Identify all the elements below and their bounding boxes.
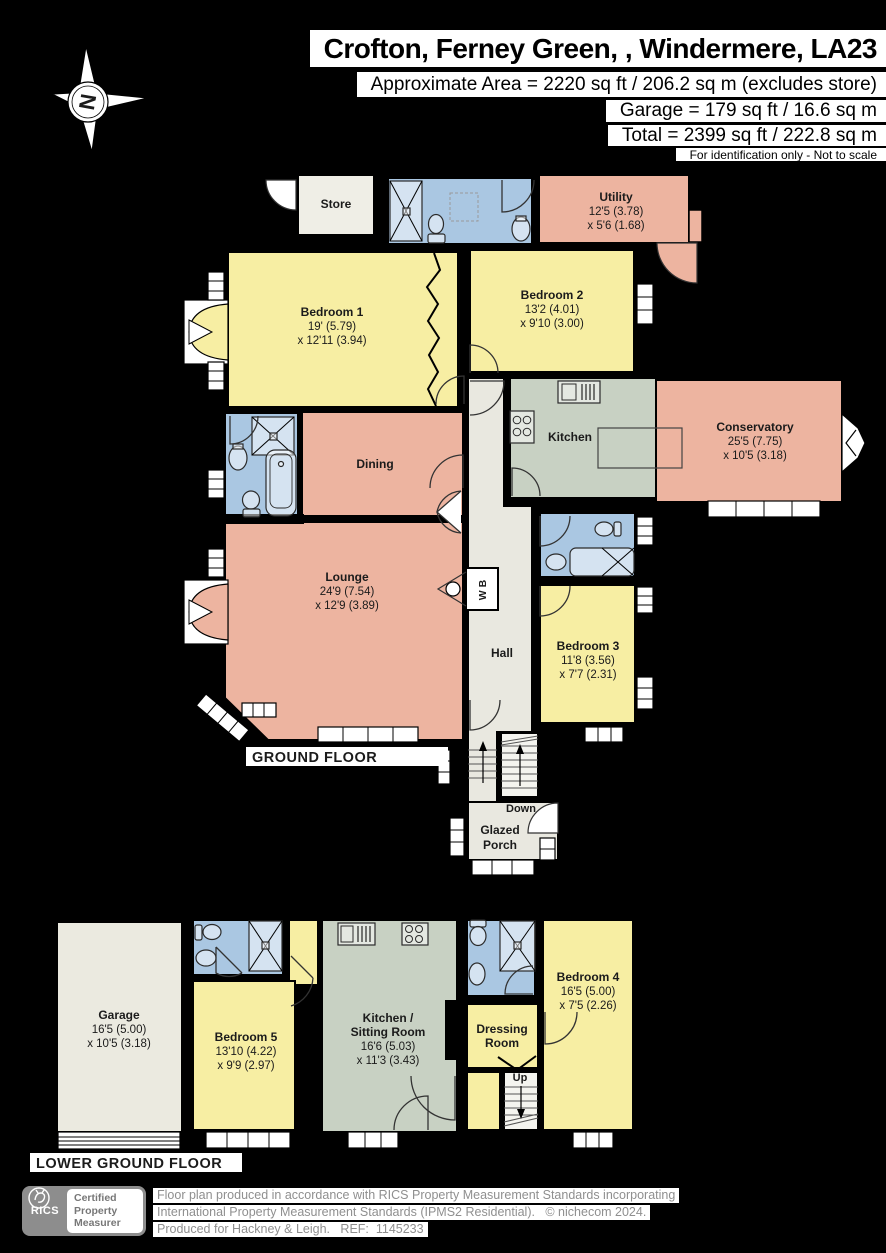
hob-icon	[510, 411, 534, 443]
room-label-porch: Glazed Porch	[480, 823, 519, 852]
shower-icon	[500, 921, 535, 971]
window	[208, 470, 224, 498]
window	[637, 517, 653, 545]
approximate-area-line: Approximate Area = 2220 sq ft / 206.2 sq…	[357, 72, 886, 97]
stairs-down-label: Down	[506, 803, 536, 815]
disclaimer-line: For identification only - Not to scale	[676, 148, 886, 161]
kitchen-sink-icon	[338, 923, 375, 945]
bay-window-lounge	[184, 580, 228, 644]
ground-floor-plan: Store Utility 12'5 (3.78) x 5'6 (1.68) B…	[184, 175, 865, 875]
room-dim: x 10'5 (3.18)	[723, 450, 787, 462]
window	[637, 284, 653, 324]
window	[348, 1132, 398, 1148]
window	[585, 727, 623, 742]
window	[242, 703, 276, 717]
room-dim: x 12'9 (3.89)	[315, 600, 379, 612]
shower-icon	[249, 921, 282, 971]
footer-disclaimer: Floor plan produced in accordance with R…	[153, 1188, 679, 1239]
room-name: Lounge	[325, 570, 369, 584]
footer-line-3: Produced for Hackney & Leigh. REF: 11452…	[153, 1222, 428, 1237]
room-dim: 16'6 (5.03)	[361, 1041, 416, 1053]
room-name: Utility	[599, 190, 633, 204]
room-dim: 13'10 (4.22)	[215, 1046, 276, 1058]
rics-certified-badge: RICS Certified Property Measurer	[22, 1186, 146, 1236]
bay-window-bedroom1	[184, 300, 228, 364]
room-vestibule	[289, 920, 318, 985]
total-area-line: Total = 2399 sq ft / 222.8 sq m	[608, 125, 886, 146]
floor-label: LOWER GROUND FLOOR	[36, 1156, 222, 1172]
sink-icon	[512, 216, 530, 241]
footer-line-1: Floor plan produced in accordance with R…	[153, 1188, 679, 1203]
room-label-bedroom5: Bedroom 5 13'10 (4.22) x 9'9 (2.97)	[215, 1030, 278, 1072]
room-label-hall: Hall	[491, 646, 513, 660]
footer-line-2: International Property Measurement Stand…	[153, 1205, 650, 1220]
room-name: Glazed	[480, 823, 519, 837]
door-arc	[266, 180, 296, 210]
room-dim: 24'9 (7.54)	[320, 586, 375, 598]
room-name: Kitchen /	[363, 1011, 414, 1025]
room-name: Room	[485, 1036, 519, 1050]
room-name: Store	[321, 197, 352, 211]
room-name: Bedroom 4	[557, 970, 620, 984]
room-label-bedroom4: Bedroom 4 16'5 (5.00) x 7'5 (2.26)	[557, 970, 620, 1012]
garage-door	[58, 1132, 180, 1149]
kitchen-sink-icon	[558, 381, 600, 403]
window	[708, 501, 820, 517]
room-name: Bedroom 1	[301, 305, 364, 319]
window	[637, 677, 653, 709]
window	[450, 818, 464, 856]
plan-title: Crofton, Ferney Green, , Windermere, LA2…	[310, 30, 886, 67]
shower-icon	[390, 181, 422, 241]
hob-icon	[402, 923, 428, 945]
bath-icon	[266, 450, 296, 516]
room-dim: 25'5 (7.75)	[728, 436, 783, 448]
toilet-icon	[195, 925, 221, 941]
room-name: Dressing	[476, 1022, 527, 1036]
window	[472, 860, 534, 875]
room-dim: 13'2 (4.01)	[525, 304, 580, 316]
cert-line: Property	[74, 1205, 143, 1218]
room-label-kitchen: Kitchen	[548, 430, 592, 444]
room-name: Porch	[483, 838, 517, 852]
room-dim: x 12'11 (3.94)	[297, 335, 366, 347]
lower-ground-floor-plan: Garage 16'5 (5.00) x 10'5 (3.18) Bedroom…	[30, 920, 633, 1172]
window	[208, 272, 224, 300]
rics-lion-icon	[22, 1186, 56, 1212]
room-name: Sitting Room	[351, 1025, 426, 1039]
certified-property-measurer-label: Certified Property Measurer	[67, 1189, 143, 1233]
compass-rose: N	[52, 46, 148, 152]
rics-emblem: RICS	[25, 1189, 65, 1233]
room-label-store: Store	[321, 197, 352, 211]
room-dim: x 9'10 (3.00)	[520, 318, 584, 330]
window	[573, 1132, 613, 1148]
room-dim: 16'5 (5.00)	[561, 986, 616, 998]
window	[540, 838, 555, 860]
toilet-icon	[470, 920, 486, 946]
cert-line: Measurer	[74, 1217, 143, 1230]
toilet-icon	[243, 491, 261, 517]
room-dim: x 10'5 (3.18)	[87, 1038, 151, 1050]
stairs-up-label: Up	[513, 1072, 528, 1084]
cert-line: Certified	[74, 1192, 143, 1205]
bath-icon	[570, 548, 634, 576]
toilet-icon	[428, 215, 445, 244]
room-dim: x 9'9 (2.97)	[217, 1060, 274, 1072]
garage-area-line: Garage = 179 sq ft / 16.6 sq m	[606, 100, 886, 122]
ground-floor-caption: GROUND FLOOR	[246, 747, 448, 766]
sink-icon	[546, 554, 566, 570]
window	[206, 1132, 290, 1148]
lower-floor-caption: LOWER GROUND FLOOR	[30, 1153, 242, 1172]
room-name: Conservatory	[716, 420, 794, 434]
room-bedroom-4	[543, 920, 633, 1130]
room-dim: x 7'5 (2.26)	[559, 1000, 616, 1012]
bay-window-conservatory	[842, 414, 865, 472]
room-dim: x 7'7 (2.31)	[559, 669, 616, 681]
sink-icon	[196, 950, 216, 966]
room-label-bedroom2: Bedroom 2 13'2 (4.01) x 9'10 (3.00)	[520, 288, 584, 330]
toilet-icon	[595, 522, 621, 536]
room-dim: 11'8 (3.56)	[561, 655, 615, 667]
shower-icon	[252, 417, 294, 455]
room-dim: 19' (5.79)	[308, 321, 356, 333]
floorplan-page: N	[0, 0, 886, 1253]
window	[208, 362, 224, 390]
wall-stub	[222, 514, 304, 524]
room-dim: 12'5 (3.78)	[589, 206, 644, 218]
room-name: Bedroom 5	[215, 1030, 278, 1044]
room-bedroom-3	[540, 585, 635, 723]
floor-label: GROUND FLOOR	[252, 750, 377, 766]
room-name: Garage	[98, 1008, 140, 1022]
wb-label: W B	[477, 579, 489, 600]
room-landing	[467, 1072, 500, 1130]
room-dim: x 5'6 (1.68)	[587, 220, 644, 232]
window	[637, 587, 653, 613]
room-dim: 16'5 (5.00)	[92, 1024, 147, 1036]
utility-door-wedge	[657, 243, 697, 283]
room-utility-step	[689, 210, 702, 242]
sink-icon	[469, 963, 485, 985]
room-dim: x 11'3 (3.43)	[357, 1055, 420, 1067]
floorplan-canvas: N	[0, 0, 886, 1253]
room-label-dining: Dining	[356, 457, 393, 471]
chimney-breast	[445, 1000, 467, 1060]
window	[208, 549, 224, 577]
room-label-bedroom3: Bedroom 3 11'8 (3.56) x 7'7 (2.31)	[557, 639, 620, 681]
detector-icon	[446, 582, 460, 596]
room-name: Bedroom 3	[557, 639, 620, 653]
window	[318, 727, 418, 742]
room-name: Bedroom 2	[521, 288, 584, 302]
